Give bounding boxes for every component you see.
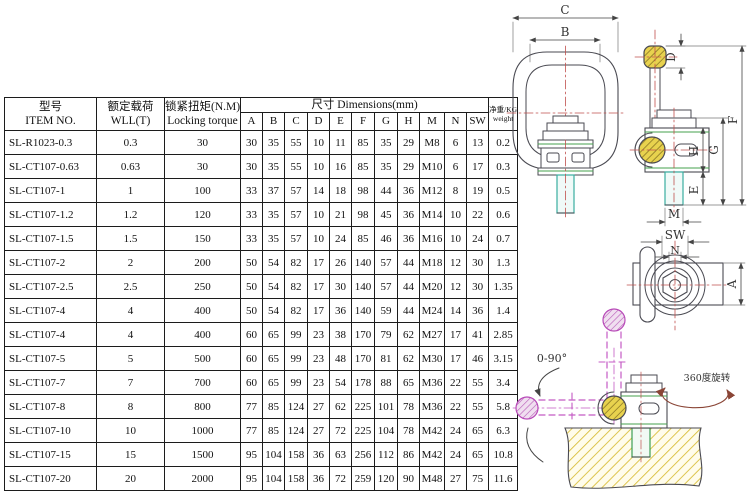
value-cell: 178 (352, 371, 375, 395)
table-row: SL-CT107-2.52.525050548217301405744M2012… (5, 275, 518, 299)
value-cell: 36 (398, 227, 420, 251)
col-header-item-no: 型号 ITEM NO. (5, 98, 97, 131)
value-cell: 256 (352, 443, 375, 467)
value-cell: 104 (375, 419, 398, 443)
value-cell: 79 (375, 323, 398, 347)
table-row: SL-CT107-7770060659923541788865M3622553.… (5, 371, 518, 395)
item-no-cell: SL-CT107-1.2 (5, 203, 97, 227)
value-cell: 77 (241, 395, 263, 419)
value-cell: 6 (445, 131, 467, 155)
value-cell: 82 (285, 251, 308, 275)
value-cell: M14 (420, 203, 445, 227)
value-cell: M48 (420, 467, 445, 491)
value-cell: 6 (445, 155, 467, 179)
value-cell: 35 (263, 227, 285, 251)
value-cell: M24 (420, 299, 445, 323)
value-cell: 78 (398, 395, 420, 419)
value-cell: 30 (165, 131, 241, 155)
value-cell: 101 (375, 395, 398, 419)
value-cell: 77 (241, 419, 263, 443)
technical-drawing: C B (495, 0, 750, 495)
value-cell: 46 (467, 347, 489, 371)
value-cell: 54 (263, 251, 285, 275)
value-cell: 700 (165, 371, 241, 395)
value-cell: 1 (97, 179, 165, 203)
value-cell: 99 (285, 347, 308, 371)
value-cell: 27 (308, 395, 330, 419)
tilt-range-label: 0-90° (537, 352, 567, 365)
value-cell: 55 (467, 371, 489, 395)
value-cell: 65 (263, 371, 285, 395)
value-cell: 85 (263, 395, 285, 419)
value-cell: 33 (241, 179, 263, 203)
value-cell: 2.5 (97, 275, 165, 299)
value-cell: 17 (308, 251, 330, 275)
mounting-view: 0-90° 360度旋转 (513, 309, 731, 488)
dim-label-A: A (725, 279, 739, 289)
value-cell: 10 (308, 227, 330, 251)
value-cell: 225 (352, 419, 375, 443)
value-cell: 41 (467, 323, 489, 347)
value-cell: 15 (97, 443, 165, 467)
col-header-torque: 锁紧扭矩(N.M) Locking torque (165, 98, 241, 131)
dim-col-A: A (241, 113, 263, 131)
value-cell: 7 (97, 371, 165, 395)
spec-table: 型号 ITEM NO. 额定载荷 WLL(T) 锁紧扭矩(N.M) Lockin… (4, 97, 518, 491)
item-no-cell: SL-CT107-2 (5, 251, 97, 275)
value-cell: 65 (263, 347, 285, 371)
value-cell: 81 (375, 347, 398, 371)
table-row: SL-CT107-888007785124276222510178M362255… (5, 395, 518, 419)
dim-col-G: G (375, 113, 398, 131)
value-cell: 11 (330, 131, 352, 155)
dim-col-SW: SW (467, 113, 489, 131)
value-cell: 30 (165, 155, 241, 179)
value-cell: 55 (467, 395, 489, 419)
value-cell: 1.5 (97, 227, 165, 251)
item-no-cell: SL-CT107-8 (5, 395, 97, 419)
value-cell: 65 (467, 443, 489, 467)
value-cell: 26 (330, 251, 352, 275)
value-cell: 62 (398, 323, 420, 347)
value-cell: 200 (165, 251, 241, 275)
value-cell: 62 (330, 395, 352, 419)
value-cell: 2000 (165, 467, 241, 491)
value-cell: 17 (308, 299, 330, 323)
value-cell: 10 (445, 227, 467, 251)
value-cell: 17 (467, 155, 489, 179)
value-cell: 100 (165, 179, 241, 203)
spec-table-body: SL-R1023-0.30.3303035551011853529M86130.… (5, 131, 518, 491)
item-no-cell: SL-CT107-1.5 (5, 227, 97, 251)
dim-col-F: F (352, 113, 375, 131)
value-cell: 158 (285, 443, 308, 467)
value-cell: 65 (467, 419, 489, 443)
value-cell: 54 (263, 299, 285, 323)
col-header-wll: 额定载荷 WLL(T) (97, 98, 165, 131)
value-cell: M36 (420, 395, 445, 419)
dim-label-H: H (687, 146, 701, 156)
value-cell: 24 (445, 443, 467, 467)
item-no-cell: SL-CT107-15 (5, 443, 97, 467)
item-no-cell: SL-CT107-5 (5, 347, 97, 371)
value-cell: 57 (375, 275, 398, 299)
value-cell: M10 (420, 155, 445, 179)
value-cell: 30 (467, 275, 489, 299)
value-cell: 98 (352, 179, 375, 203)
value-cell: 60 (241, 371, 263, 395)
value-cell: 72 (330, 419, 352, 443)
value-cell: 12 (445, 251, 467, 275)
table-row: SL-CT107-2020200095104158367225912090M48… (5, 467, 518, 491)
value-cell: 30 (241, 155, 263, 179)
value-cell: 158 (285, 467, 308, 491)
dim-label-B: B (561, 25, 570, 39)
value-cell: 50 (241, 275, 263, 299)
value-cell: 27 (445, 467, 467, 491)
table-row: SL-CT107-101010007785124277222510478M422… (5, 419, 518, 443)
table-row: SL-CT107-0.630.63303035551016853529M1061… (5, 155, 518, 179)
value-cell: 86 (398, 443, 420, 467)
value-cell: 23 (308, 371, 330, 395)
bottom-view: SW N A (627, 228, 745, 330)
value-cell: 0.3 (97, 131, 165, 155)
dim-label-D: D (664, 52, 678, 62)
value-cell: 57 (375, 251, 398, 275)
item-no-cell: SL-R1023-0.3 (5, 131, 97, 155)
value-cell: 120 (165, 203, 241, 227)
value-cell: 38 (330, 323, 352, 347)
side-view: D F G H (630, 30, 746, 226)
spec-sheet: 型号 ITEM NO. 额定载荷 WLL(T) 锁紧扭矩(N.M) Lockin… (0, 0, 750, 495)
value-cell: 36 (398, 179, 420, 203)
value-cell: 104 (263, 443, 285, 467)
value-cell: 14 (308, 179, 330, 203)
value-cell: 37 (263, 179, 285, 203)
item-no-cell: SL-CT107-7 (5, 371, 97, 395)
value-cell: 22 (445, 371, 467, 395)
value-cell: 18 (330, 179, 352, 203)
table-row: SL-CT107-1.51.51503335571024854636M16102… (5, 227, 518, 251)
value-cell: 35 (263, 155, 285, 179)
value-cell: 57 (285, 203, 308, 227)
value-cell: 44 (398, 275, 420, 299)
header-item-no-zh: 型号 (5, 100, 96, 114)
value-cell: 500 (165, 347, 241, 371)
value-cell: 85 (352, 227, 375, 251)
value-cell: 259 (352, 467, 375, 491)
value-cell: 8 (97, 395, 165, 419)
value-cell: 23 (308, 323, 330, 347)
dim-label-G: G (707, 145, 721, 155)
value-cell: 5 (97, 347, 165, 371)
value-cell: 1500 (165, 443, 241, 467)
value-cell: 23 (308, 347, 330, 371)
value-cell: 21 (330, 203, 352, 227)
value-cell: 82 (285, 275, 308, 299)
value-cell: 225 (352, 395, 375, 419)
value-cell: 10 (308, 155, 330, 179)
header-torque-zh: 锁紧扭矩(N.M) (165, 100, 240, 114)
header-wll-zh: 额定载荷 (97, 100, 164, 114)
value-cell: 75 (467, 467, 489, 491)
value-cell: 98 (352, 203, 375, 227)
value-cell: 57 (285, 227, 308, 251)
dim-label-M: M (668, 207, 680, 221)
value-cell: M30 (420, 347, 445, 371)
value-cell: 88 (375, 371, 398, 395)
value-cell: 90 (398, 467, 420, 491)
value-cell: 1000 (165, 419, 241, 443)
value-cell: 29 (398, 155, 420, 179)
value-cell: 63 (330, 443, 352, 467)
value-cell: 4 (97, 323, 165, 347)
value-cell: M20 (420, 275, 445, 299)
value-cell: 99 (285, 371, 308, 395)
value-cell: 124 (285, 419, 308, 443)
item-no-cell: SL-CT107-20 (5, 467, 97, 491)
value-cell: M8 (420, 131, 445, 155)
value-cell: 22 (445, 395, 467, 419)
value-cell: 20 (97, 467, 165, 491)
dim-col-N: N (445, 113, 467, 131)
table-row: SL-CT107-2220050548217261405744M1812301.… (5, 251, 518, 275)
value-cell: 36 (330, 299, 352, 323)
value-cell: M16 (420, 227, 445, 251)
value-cell: M12 (420, 179, 445, 203)
item-no-cell: SL-CT107-4 (5, 299, 97, 323)
value-cell: 14 (445, 299, 467, 323)
value-cell: 140 (352, 275, 375, 299)
value-cell: 22 (467, 203, 489, 227)
value-cell: 35 (375, 131, 398, 155)
value-cell: 54 (330, 371, 352, 395)
dim-col-E: E (330, 113, 352, 131)
dim-col-D: D (308, 113, 330, 131)
value-cell: 0.63 (97, 155, 165, 179)
dim-col-M: M (420, 113, 445, 131)
dim-col-H: H (398, 113, 420, 131)
item-no-cell: SL-CT107-4 (5, 323, 97, 347)
value-cell: 10 (308, 131, 330, 155)
value-cell: 60 (241, 323, 263, 347)
value-cell: 85 (352, 155, 375, 179)
item-no-cell: SL-CT107-0.63 (5, 155, 97, 179)
value-cell: 85 (263, 419, 285, 443)
rotation-label: 360度旋转 (684, 372, 731, 384)
value-cell: 12 (445, 275, 467, 299)
table-row: SL-CT107-1.21.21203335571021984536M14102… (5, 203, 518, 227)
header-torque-en: Locking torque (165, 114, 240, 128)
value-cell: 17 (445, 347, 467, 371)
value-cell: 65 (263, 323, 285, 347)
value-cell: 36 (467, 299, 489, 323)
value-cell: 33 (241, 227, 263, 251)
value-cell: 19 (467, 179, 489, 203)
front-view: C B (507, 3, 624, 219)
header-item-no-en: ITEM NO. (5, 114, 96, 128)
value-cell: 400 (165, 323, 241, 347)
value-cell: 59 (375, 299, 398, 323)
value-cell: 30 (241, 131, 263, 155)
value-cell: 170 (352, 347, 375, 371)
value-cell: 124 (285, 395, 308, 419)
dim-label-E: E (687, 186, 701, 195)
value-cell: 95 (241, 467, 263, 491)
item-no-cell: SL-CT107-2.5 (5, 275, 97, 299)
dim-label-C: C (560, 3, 569, 17)
value-cell: 30 (467, 251, 489, 275)
value-cell: 24 (467, 227, 489, 251)
value-cell: 36 (308, 467, 330, 491)
dim-col-C: C (285, 113, 308, 131)
header-wll-en: WLL(T) (97, 114, 164, 128)
value-cell: 35 (263, 203, 285, 227)
value-cell: 29 (398, 131, 420, 155)
value-cell: 55 (285, 131, 308, 155)
value-cell: 13 (467, 131, 489, 155)
value-cell: 50 (241, 299, 263, 323)
value-cell: 55 (285, 155, 308, 179)
value-cell: 104 (263, 467, 285, 491)
value-cell: 33 (241, 203, 263, 227)
value-cell: 46 (375, 227, 398, 251)
value-cell: 27 (308, 419, 330, 443)
value-cell: 36 (308, 443, 330, 467)
table-row: SL-CT107-111003337571418984436M128190.5 (5, 179, 518, 203)
value-cell: 10 (308, 203, 330, 227)
value-cell: 24 (445, 419, 467, 443)
value-cell: 78 (398, 419, 420, 443)
value-cell: 82 (285, 299, 308, 323)
dim-col-B: B (263, 113, 285, 131)
value-cell: 150 (165, 227, 241, 251)
value-cell: 17 (308, 275, 330, 299)
dim-label-F: F (726, 116, 740, 124)
value-cell: 10 (97, 419, 165, 443)
value-cell: 30 (330, 275, 352, 299)
table-row: SL-CT107-4440060659923381707962M2717412.… (5, 323, 518, 347)
dim-label-SW: SW (665, 228, 686, 242)
value-cell: 65 (398, 371, 420, 395)
value-cell: 36 (398, 203, 420, 227)
value-cell: 800 (165, 395, 241, 419)
value-cell: 60 (241, 347, 263, 371)
value-cell: M42 (420, 443, 445, 467)
table-row: SL-CT107-4440050548217361405944M2414361.… (5, 299, 518, 323)
item-no-cell: SL-CT107-1 (5, 179, 97, 203)
value-cell: M27 (420, 323, 445, 347)
hoist-ring-drawing: C B (495, 0, 750, 495)
value-cell: 44 (398, 251, 420, 275)
value-cell: M36 (420, 371, 445, 395)
value-cell: 62 (398, 347, 420, 371)
value-cell: 99 (285, 323, 308, 347)
value-cell: 44 (398, 299, 420, 323)
value-cell: 400 (165, 299, 241, 323)
value-cell: 35 (375, 155, 398, 179)
value-cell: 48 (330, 347, 352, 371)
value-cell: 85 (352, 131, 375, 155)
value-cell: 1.2 (97, 203, 165, 227)
value-cell: 35 (263, 131, 285, 155)
value-cell: 8 (445, 179, 467, 203)
table-row: SL-CT107-1515150095104158366325611286M42… (5, 443, 518, 467)
item-no-cell: SL-CT107-10 (5, 419, 97, 443)
value-cell: 16 (330, 155, 352, 179)
value-cell: 17 (445, 323, 467, 347)
value-cell: 95 (241, 443, 263, 467)
value-cell: 44 (375, 179, 398, 203)
col-header-dimensions: 尺寸 Dimensions(mm) (241, 98, 489, 113)
table-row: SL-R1023-0.30.3303035551011853529M86130.… (5, 131, 518, 155)
value-cell: 4 (97, 299, 165, 323)
value-cell: 45 (375, 203, 398, 227)
value-cell: 140 (352, 251, 375, 275)
value-cell: 10 (445, 203, 467, 227)
value-cell: 112 (375, 443, 398, 467)
value-cell: M42 (420, 419, 445, 443)
value-cell: M18 (420, 251, 445, 275)
value-cell: 250 (165, 275, 241, 299)
value-cell: 50 (241, 251, 263, 275)
value-cell: 54 (263, 275, 285, 299)
value-cell: 2 (97, 251, 165, 275)
value-cell: 72 (330, 467, 352, 491)
value-cell: 140 (352, 299, 375, 323)
value-cell: 24 (330, 227, 352, 251)
value-cell: 170 (352, 323, 375, 347)
value-cell: 57 (285, 179, 308, 203)
value-cell: 120 (375, 467, 398, 491)
table-row: SL-CT107-5550060659923481708162M3017463.… (5, 347, 518, 371)
